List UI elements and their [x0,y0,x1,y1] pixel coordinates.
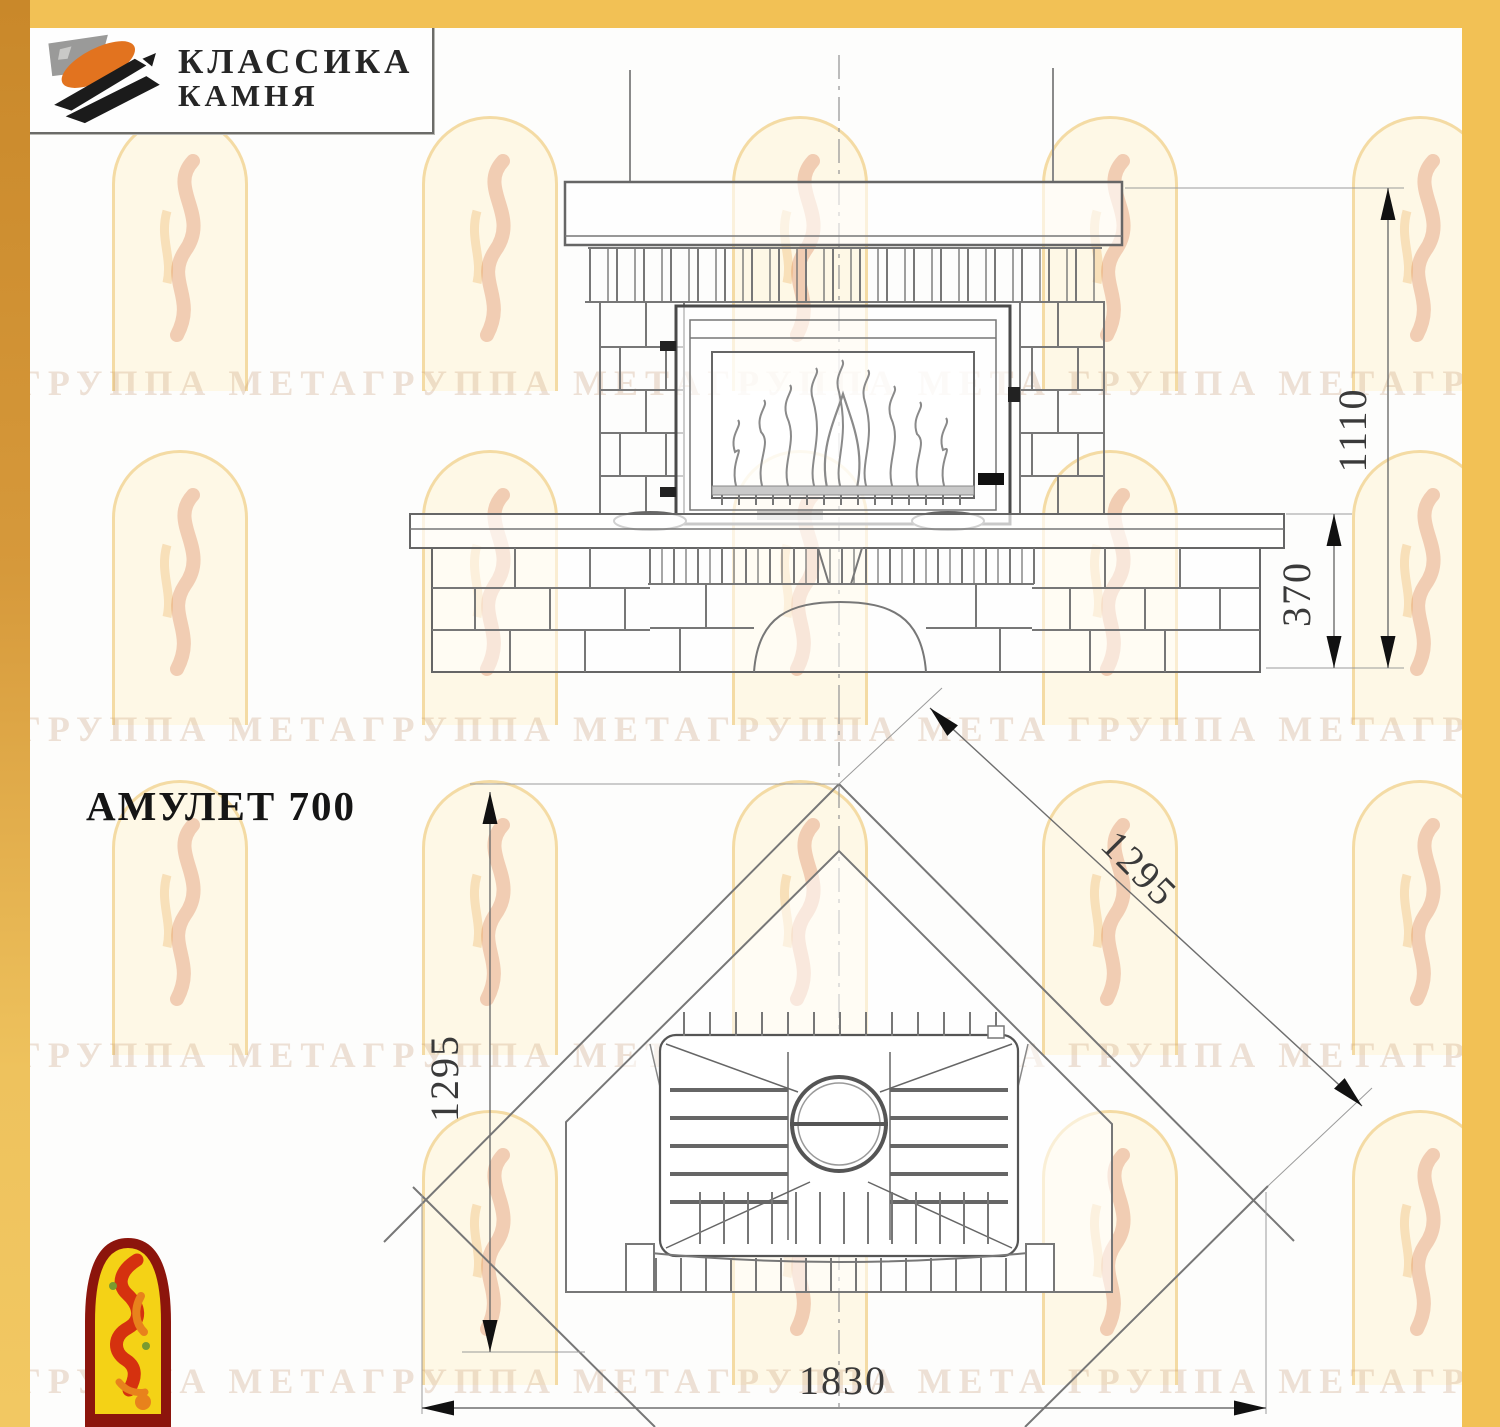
brand-name: КЛАССИКА КАМНЯ [178,44,413,111]
latch-tab [1008,387,1020,402]
bench-counter [410,514,1284,548]
plan-view [384,700,1294,1427]
insert-plan-tab [988,1026,1004,1038]
left-pilaster-joints [600,302,684,514]
brand-logo-box: КЛАССИКА КАМНЯ [28,22,434,134]
grate-bar [712,486,974,495]
right-pilaster [1020,302,1104,514]
dim-bench-height: 370 [1274,561,1319,627]
dim-wall-left: 1295 [422,1034,467,1122]
front-view [410,55,1284,700]
hinge-bottom [660,487,676,497]
stained-glass-logo [83,1234,173,1427]
chimney-lines [630,68,1053,182]
brand-logo-icon [36,30,176,126]
brand-name-line1: КЛАССИКА [178,44,413,80]
door-handle [978,473,1004,485]
dim-overall-height: 1110 [1330,387,1375,472]
soldier-course-lines [585,248,1105,302]
ledge-end-left [626,1244,654,1292]
left-pilaster [600,302,684,514]
hinge-top [660,341,676,351]
fireplace-technical-drawing: 1110 370 1295 1295 1830 [0,0,1500,1427]
ledge-end-right [1026,1244,1054,1292]
model-label: АМУЛЕТ 700 [86,782,356,830]
page-border-top [0,0,1500,28]
soldier-bricks [590,248,1094,301]
page-border-left [0,0,30,1427]
brand-name-line2: КАМНЯ [178,80,413,112]
bench-body [432,548,1260,672]
catalog-page: ГРУППА МЕТАГРУППА МЕТАГРУППА МЕТА ГРУППА… [0,0,1500,1427]
page-border-right [1462,0,1500,1427]
dim-overall-width: 1830 [799,1358,887,1403]
right-pilaster-joints [1020,302,1104,514]
